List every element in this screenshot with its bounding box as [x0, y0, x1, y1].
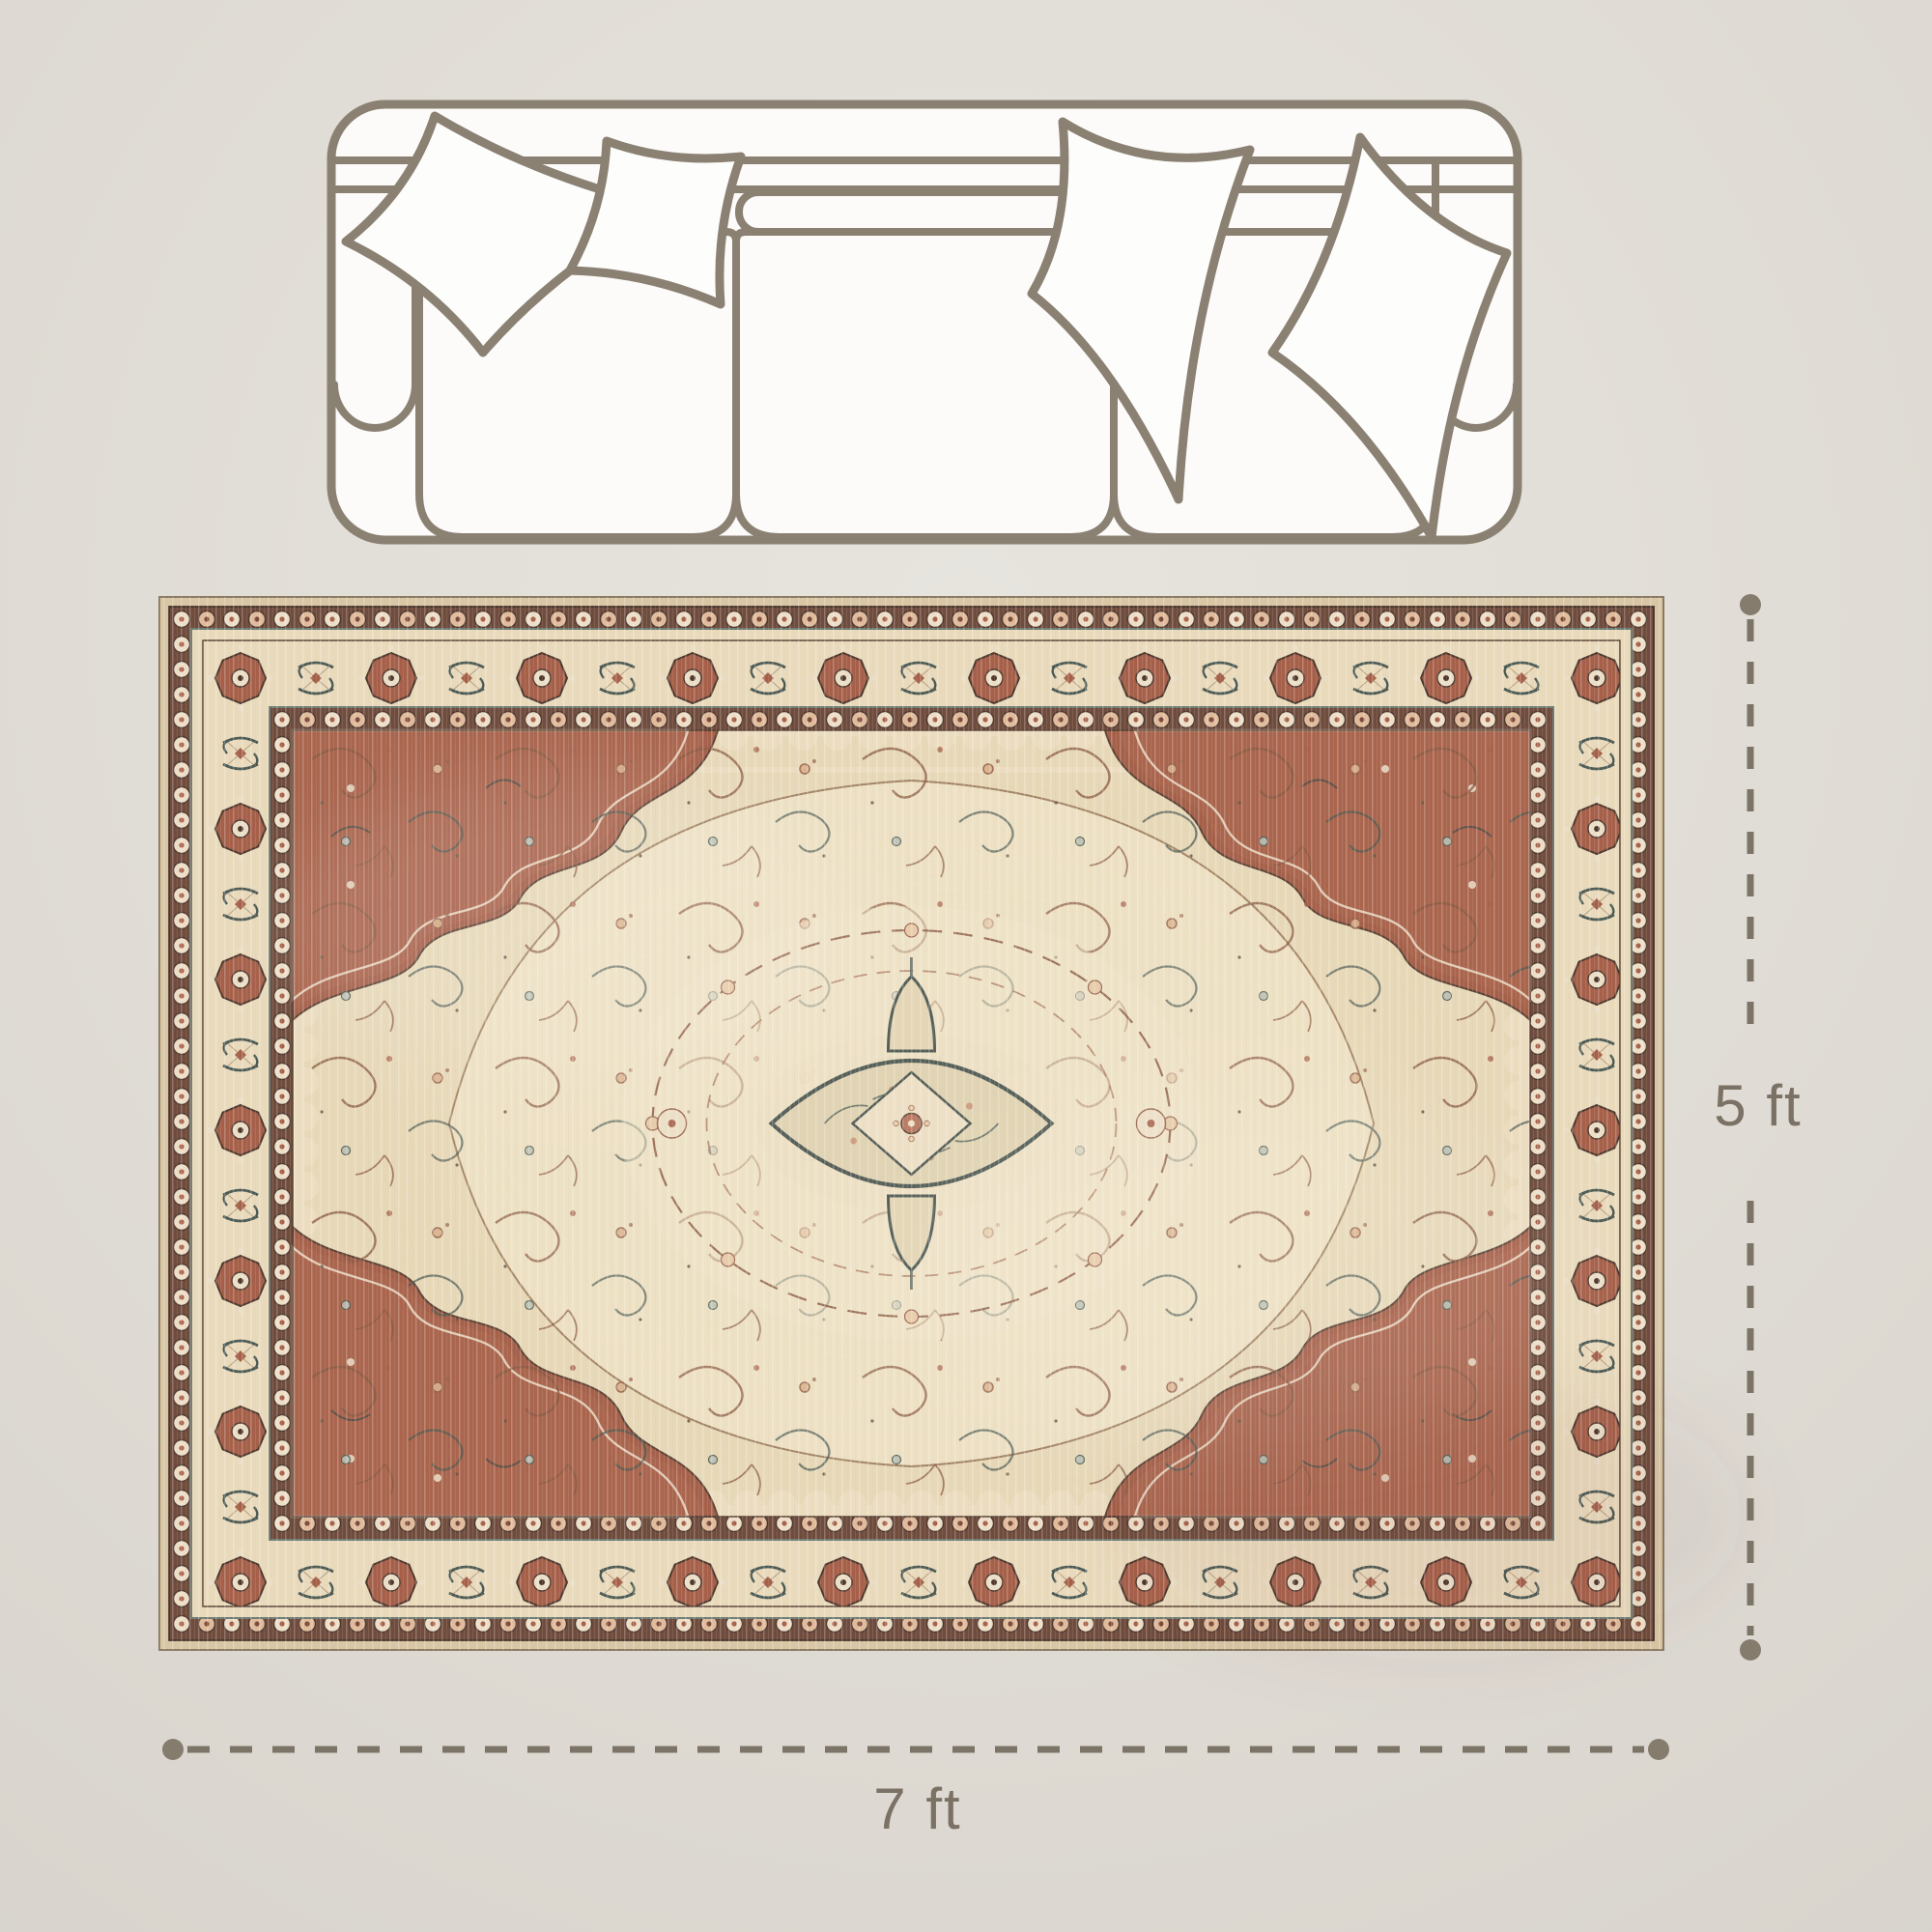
rug-image — [159, 597, 1744, 1660]
width-dimension: 7 ft — [162, 1739, 1669, 1841]
scene-background: 5 ft 7 ft — [0, 0, 1932, 1932]
width-dimension-endpoint-right — [1648, 1739, 1669, 1760]
sofa-top-view-icon — [331, 104, 1518, 540]
width-label: 7 ft — [873, 1776, 961, 1841]
width-dimension-endpoint-left — [162, 1739, 184, 1760]
diagram-canvas: 5 ft 7 ft — [0, 0, 1932, 1932]
height-dimension-endpoint-top — [1740, 594, 1761, 615]
height-dimension-endpoint-bottom — [1740, 1639, 1761, 1661]
height-label: 5 ft — [1714, 1073, 1802, 1138]
